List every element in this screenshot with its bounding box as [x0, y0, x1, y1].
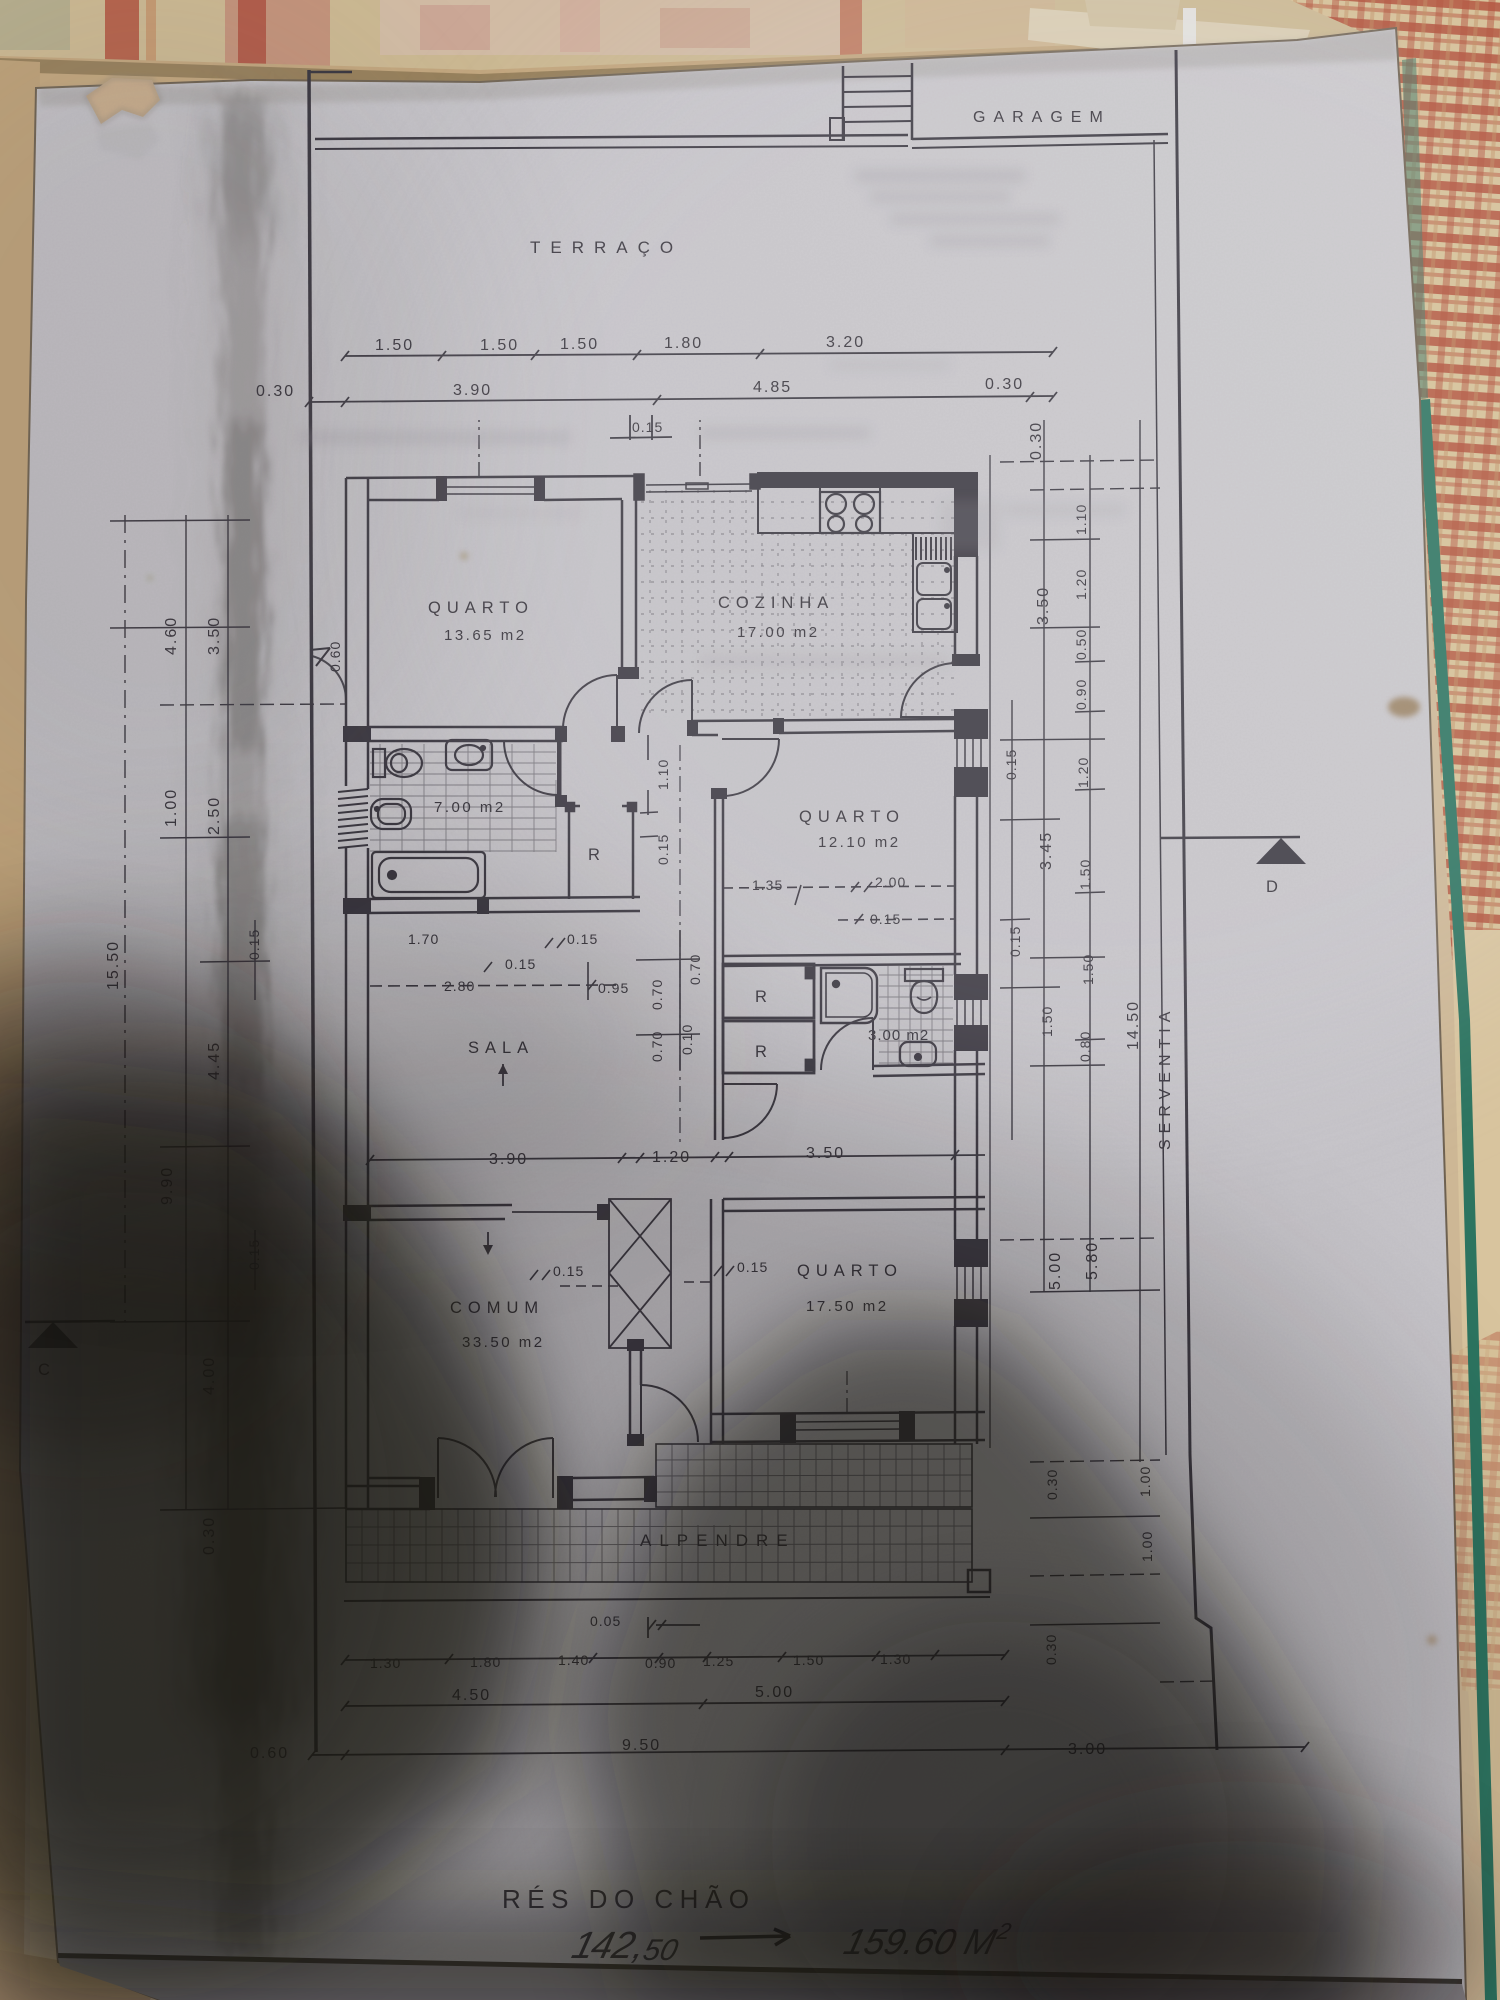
svg-text:R: R	[755, 1043, 767, 1061]
svg-text:0.10: 0.10	[679, 1024, 695, 1055]
